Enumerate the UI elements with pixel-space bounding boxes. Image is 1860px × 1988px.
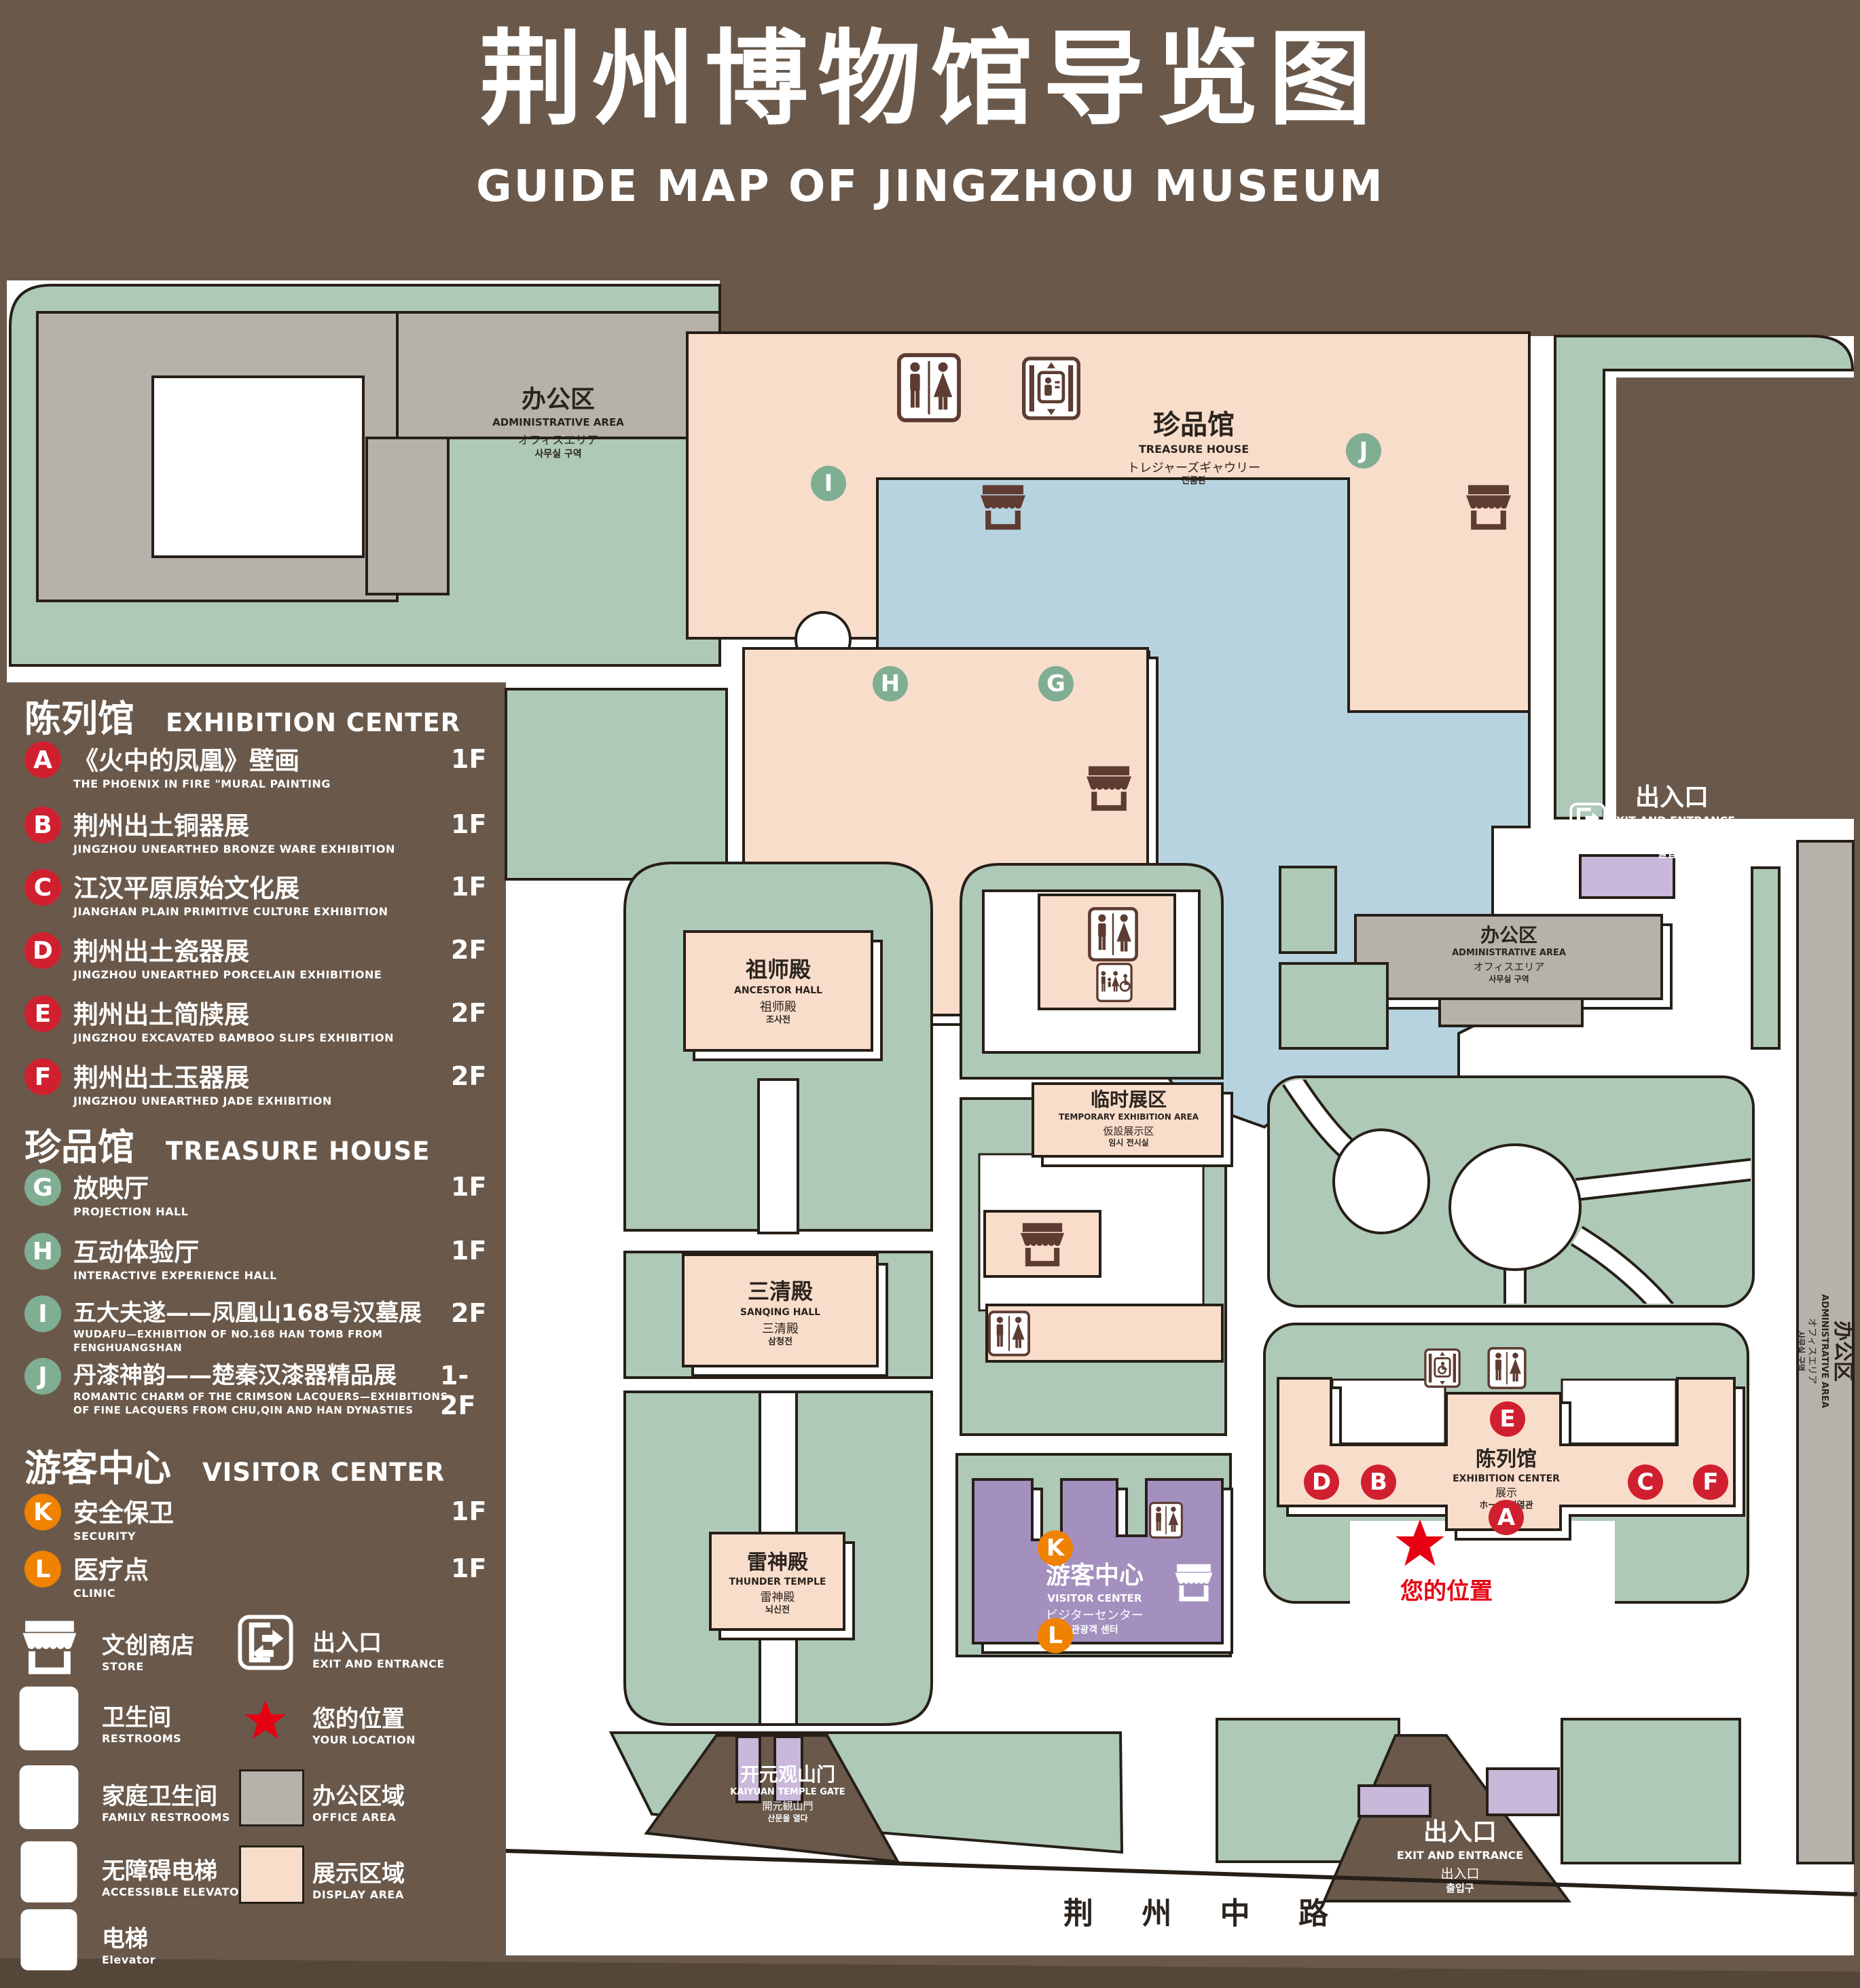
legend-facility-store: 文创商店 STORE (102, 1627, 194, 1673)
symbol-en: EXIT AND ENTRANCE (312, 1657, 445, 1670)
exit-tr-zh: 出入口 (1609, 782, 1735, 814)
symbol-en: OFFICE AREA (312, 1811, 405, 1824)
admin2-ja: オフィスエリア (1452, 961, 1566, 974)
legend-item-H: H 互动体验厅 INTERACTIVE EXPERIENCE HALL 1F (24, 1232, 500, 1283)
item-badge: H (24, 1233, 61, 1270)
road-name: 荆 州 中 路 (1063, 1894, 1347, 1933)
marker-C: C (1628, 1465, 1663, 1500)
restrooms-icon (1148, 1502, 1184, 1539)
label-treasure-house: 珍品馆 TREASURE HOUSE トレジャーズギャウリー 진품관 (1127, 407, 1260, 487)
admin2-ko: 사무실 구역 (1452, 974, 1566, 985)
exit-br-ja: 出入口 (1397, 1866, 1523, 1883)
legend-item-E: E 荆州出土简牍展 JINGZHOU EXCAVATED BAMBOO SLIP… (24, 994, 500, 1046)
admin3-ja: オフィスエリア (1806, 1294, 1818, 1408)
item-title: 江汉平原原始文化展 (73, 868, 500, 904)
item-floor: 1F (451, 1172, 486, 1202)
item-subtitle: PROJECTION HALL (73, 1204, 454, 1219)
admin2-en: ADMINISTRATIVE AREA (1452, 948, 1566, 959)
family-restrooms-icon (19, 1765, 79, 1829)
treasure-zh: 珍品馆 (1127, 407, 1260, 443)
admin-ko: 사무실 구역 (492, 448, 624, 460)
marker-D: D (1304, 1465, 1339, 1500)
family-restrooms-icon (1095, 963, 1133, 1002)
item-title: 五大夫遂——凤凰山168号汉墓展 (73, 1294, 500, 1327)
item-floor: 1F (451, 1553, 486, 1583)
exit-tr-ja: 出入口 (1609, 831, 1735, 848)
gate-ko: 산문을 열다 (730, 1814, 845, 1824)
temp-ko: 임시 전시실 (1059, 1138, 1199, 1149)
legend-facility-accessible-elevator: 无障碍电梯 ACCESSIBLE ELEVATOR (102, 1852, 248, 1898)
admin3-zh: 办公区 (1829, 1294, 1856, 1408)
item-floor: 1-2F (440, 1361, 500, 1420)
facility-en: Elevator (102, 1953, 156, 1966)
legend-item-L: L 医疗点 CLINIC 1F (24, 1549, 500, 1601)
facility-zh: 电梯 (102, 1920, 156, 1953)
legend-facility-restrooms: 卫生间 RESTROOMS (102, 1699, 181, 1745)
section-zh: 陈列馆 (24, 688, 134, 742)
label-ancestor-hall: 祖师殿 ANCESTOR HALL 祖师殿 조사전 (734, 956, 822, 1027)
thunder-zh: 雷神殿 (729, 1549, 826, 1576)
label-admin-top-left: 办公区 ADMINISTRATIVE AREA オフィスエリア 사무실 구역 (492, 384, 624, 461)
label-sanqing-hall: 三清殿 SANQING HALL 三清殿 삼청전 (740, 1278, 820, 1348)
store-icon (1464, 482, 1513, 531)
thunder-ja: 雷神殿 (729, 1590, 826, 1605)
legend-item-F: F 荆州出土玉器展 JINGZHOU UNEARTHED JADE EXHIBI… (24, 1057, 500, 1109)
item-subtitle: SECURITY (73, 1529, 454, 1544)
item-floor: 2F (451, 1061, 486, 1091)
item-floor: 1F (451, 1496, 486, 1526)
item-subtitle: JINGZHOU UNEARTHED JADE EXHIBITION (73, 1094, 454, 1109)
exit-br-zh: 出入口 (1397, 1817, 1523, 1849)
thunder-ko: 뇌신전 (729, 1605, 826, 1617)
store-icon (1173, 1560, 1214, 1604)
item-badge: G (24, 1169, 61, 1206)
store-icon (20, 1617, 79, 1676)
marker-I: I (811, 466, 846, 501)
item-subtitle: ROMANTIC CHARM OF THE CRIMSON LACQUERS—E… (73, 1390, 454, 1418)
legend-item-A: A 《火中的凤凰》壁画 THE PHOENIX IN FIRE "MURAL P… (24, 740, 500, 792)
legend-item-J: J 丹漆神韵——楚秦汉漆器精品展 ROMANTIC CHARM OF THE C… (24, 1357, 500, 1418)
legend-symbol-your-location: 您的位置 YOUR LOCATION (312, 1700, 416, 1746)
store-icon (979, 482, 1027, 531)
legend-item-D: D 荆州出土瓷器展 JINGZHOU UNEARTHED PORCELAIN E… (24, 931, 500, 982)
restrooms-icon (19, 1687, 79, 1750)
symbol-zh: 办公区域 (312, 1778, 405, 1811)
facility-zh: 无障碍电梯 (102, 1852, 248, 1885)
label-exit-bottom-right: 出入口 EXIT AND ENTRANCE 出入口 출입구 (1397, 1817, 1523, 1896)
legend-item-B: B 荆州出土铜器展 JINGZHOU UNEARTHED BRONZE WARE… (24, 805, 500, 857)
section-zh: 游客中心 (24, 1438, 171, 1492)
facility-en: ACCESSIBLE ELEVATOR (102, 1885, 248, 1898)
item-title: 《火中的凤凰》壁画 (73, 740, 500, 777)
marker-E: E (1490, 1401, 1525, 1437)
item-title: 丹漆神韵——楚秦汉漆器精品展 (73, 1357, 500, 1390)
item-title: 安全保卫 (73, 1492, 500, 1529)
restrooms-icon (1085, 907, 1141, 961)
item-badge: B (24, 807, 61, 843)
your-location-label: 您的位置 (1400, 1577, 1493, 1606)
label-thunder-temple: 雷神殿 THUNDER TEMPLE 雷神殿 뇌신전 (729, 1549, 826, 1617)
restrooms-icon (1486, 1347, 1528, 1389)
label-temporary-exhibition: 临时展区 TEMPORARY EXHIBITION AREA 仮設展示区 임시 … (1059, 1088, 1199, 1149)
marker-J: J (1346, 433, 1381, 468)
item-subtitle: INTERACTIVE EXPERIENCE HALL (73, 1268, 454, 1283)
item-floor: 1F (451, 872, 486, 902)
legend-facility-family-restrooms: 家庭卫生间 FAMILY RESTROOMS (102, 1778, 230, 1824)
symbol-en: DISPLAY AREA (312, 1888, 405, 1901)
symbol-en: YOUR LOCATION (312, 1733, 416, 1746)
legend-item-C: C 江汉平原原始文化展 JIANGHAN PLAIN PRIMITIVE CUL… (24, 868, 500, 919)
vc-zh: 游客中心 (1046, 1560, 1144, 1592)
legend-symbol-display-area: 展示区域 DISPLAY AREA (312, 1855, 405, 1901)
admin2-zh: 办公区 (1452, 923, 1566, 948)
ancestor-ja: 祖师殿 (734, 999, 822, 1015)
marker-H: H (873, 666, 908, 701)
label-admin-mid-right: 办公区 ADMINISTRATIVE AREA オフィスエリア 사무실 구역 (1452, 923, 1566, 984)
item-subtitle: CLINIC (73, 1586, 454, 1601)
your-location-star-icon (1393, 1518, 1446, 1569)
marker-F: F (1693, 1465, 1728, 1500)
facility-zh: 卫生间 (102, 1699, 181, 1732)
item-subtitle: JINGZHOU EXCAVATED BAMBOO SLIPS EXHIBITI… (73, 1031, 454, 1046)
treasure-ja: トレジャーズギャウリー (1127, 460, 1260, 476)
accessible-elevator-icon (1423, 1348, 1461, 1388)
exit-tr-ko: 출입구 (1609, 847, 1735, 861)
gate-en: KAIYUAN TEMPLE GATE (730, 1787, 845, 1799)
symbol-zh: 展示区域 (312, 1855, 405, 1888)
item-floor: 2F (451, 1298, 486, 1328)
treasure-ko: 진품관 (1127, 476, 1260, 487)
ancestor-ko: 조사전 (734, 1015, 822, 1027)
thunder-en: THUNDER TEMPLE (729, 1576, 826, 1588)
item-floor: 1F (451, 809, 486, 839)
admin-zh: 办公区 (492, 384, 624, 416)
location-star-icon (243, 1699, 288, 1742)
facility-en: FAMILY RESTROOMS (102, 1811, 230, 1824)
temp-en: TEMPORARY EXHIBITION AREA (1059, 1112, 1199, 1123)
gate-ja: 開元観山門 (730, 1800, 845, 1814)
item-floor: 2F (451, 998, 486, 1028)
item-subtitle: THE PHOENIX IN FIRE "MURAL PAINTING (73, 777, 454, 792)
section-zh: 珍品馆 (24, 1117, 134, 1171)
facility-zh: 文创商店 (102, 1627, 194, 1660)
item-floor: 2F (451, 935, 486, 965)
admin-en: ADMINISTRATIVE AREA (492, 416, 624, 430)
exit-icon (238, 1615, 293, 1670)
symbol-zh: 出入口 (312, 1624, 445, 1657)
legend-section-treasure-house: 珍品馆 TREASURE HOUSE (24, 1117, 430, 1171)
item-subtitle: JINGZHOU UNEARTHED PORCELAIN EXHIBITIONE (73, 968, 454, 982)
item-badge: D (24, 932, 61, 969)
guide-map-page: 荆州博物馆导览图 GUIDE MAP OF JINGZHOU MUSEUM 办公… (0, 0, 1860, 1988)
exit-tr-en: EXIT AND ENTRANCE (1609, 814, 1735, 828)
ec-en: EXHIBITION CENTER (1453, 1473, 1560, 1485)
section-en: TREASURE HOUSE (166, 1137, 430, 1166)
item-badge: K (24, 1494, 61, 1530)
legend-item-I: I 五大夫遂——凤凰山168号汉墓展 WUDAFU—EXHIBITION OF … (24, 1294, 500, 1355)
ec-zh: 陈列馆 (1453, 1446, 1560, 1473)
display-area-swatch (239, 1845, 304, 1904)
item-title: 医疗点 (73, 1549, 500, 1586)
item-title: 互动体验厅 (73, 1232, 500, 1268)
marker-B: B (1361, 1465, 1396, 1500)
item-title: 荆州出土玉器展 (73, 1057, 500, 1094)
legend-symbol-exit: 出入口 EXIT AND ENTRANCE (312, 1624, 445, 1670)
symbol-zh: 您的位置 (312, 1700, 416, 1733)
elevator-icon (20, 1909, 77, 1970)
legend-item-G: G 放映厅 PROJECTION HALL 1F (24, 1168, 500, 1219)
title-en: GUIDE MAP OF JINGZHOU MUSEUM (476, 159, 1385, 215)
item-subtitle: JINGZHOU UNEARTHED BRONZE WARE EXHIBITIO… (73, 842, 454, 857)
ec-l3: 展示 (1453, 1486, 1560, 1501)
item-subtitle: JIANGHAN PLAIN PRIMITIVE CULTURE EXHIBIT… (73, 904, 454, 919)
sanqing-en: SANQING HALL (740, 1306, 820, 1319)
item-floor: 1F (451, 1236, 486, 1266)
section-en: VISITOR CENTER (202, 1458, 445, 1487)
store-icon (1019, 1220, 1066, 1268)
office-area-swatch (239, 1769, 304, 1826)
exit-br-ko: 출입구 (1397, 1882, 1523, 1896)
marker-K: K (1038, 1530, 1073, 1566)
temp-zh: 临时展区 (1059, 1088, 1199, 1112)
temp-ja: 仮設展示区 (1059, 1125, 1199, 1139)
ancestor-en: ANCESTOR HALL (734, 984, 822, 997)
store-icon (1084, 763, 1133, 812)
title-zh: 荆州博物馆导览图 (476, 12, 1385, 147)
item-badge: F (24, 1059, 61, 1095)
item-badge: E (24, 995, 61, 1032)
item-title: 荆州出土铜器展 (73, 805, 500, 842)
item-floor: 1F (451, 744, 486, 774)
item-badge: I (24, 1295, 61, 1332)
section-en: EXHIBITION CENTER (166, 708, 460, 737)
restrooms-icon (897, 353, 961, 422)
page-title: 荆州博物馆导览图 GUIDE MAP OF JINGZHOU MUSEUM (476, 12, 1385, 215)
marker-A: A (1489, 1500, 1524, 1535)
sanqing-ko: 삼청전 (740, 1337, 820, 1348)
item-title: 荆州出土瓷器展 (73, 931, 500, 968)
item-badge: J (24, 1358, 61, 1395)
legend-symbol-office-area: 办公区域 OFFICE AREA (312, 1778, 405, 1824)
legend-item-K: K 安全保卫 SECURITY 1F (24, 1492, 500, 1544)
marker-G: G (1038, 666, 1074, 701)
item-badge: A (24, 741, 61, 778)
gate-zh: 开元观山门 (730, 1763, 845, 1787)
sanqing-zh: 三清殿 (740, 1278, 820, 1306)
marker-L: L (1038, 1618, 1073, 1653)
item-subtitle: WUDAFU—EXHIBITION OF NO.168 HAN TOMB FRO… (73, 1327, 454, 1355)
admin3-en: ADMINISTRATIVE AREA (1818, 1294, 1829, 1408)
admin-ja: オフィスエリア (492, 433, 624, 448)
legend-facility-elevator: 电梯 Elevator (102, 1920, 156, 1966)
restrooms-icon (988, 1306, 1030, 1361)
legend-section-visitor-center: 游客中心 VISITOR CENTER (24, 1438, 445, 1492)
elevator-icon (1022, 354, 1080, 422)
treasure-en: TREASURE HOUSE (1127, 443, 1260, 457)
sanqing-ja: 三清殿 (740, 1321, 820, 1337)
label-kaiyuan-gate: 开元观山门 KAIYUAN TEMPLE GATE 開元観山門 산문을 열다 (730, 1763, 845, 1824)
facility-zh: 家庭卫生间 (102, 1778, 230, 1811)
legend-section-exhibition-center: 陈列馆 EXHIBITION CENTER (24, 688, 460, 742)
item-title: 荆州出土简牍展 (73, 994, 500, 1031)
admin3-ko: 사무실 구역 (1795, 1294, 1806, 1408)
item-title: 放映厅 (73, 1168, 500, 1204)
vc-en: VISITOR CENTER (1046, 1592, 1144, 1606)
exit-br-en: EXIT AND ENTRANCE (1397, 1849, 1523, 1863)
facility-en: STORE (102, 1660, 194, 1673)
label-exit-top-right: 出入口 EXIT AND ENTRANCE 出入口 출입구 (1609, 782, 1735, 861)
exit-icon (1569, 803, 1606, 839)
ancestor-zh: 祖师殿 (734, 956, 822, 984)
item-badge: L (24, 1551, 61, 1587)
accessible-elevator-icon (20, 1841, 77, 1902)
facility-en: RESTROOMS (102, 1732, 181, 1745)
item-badge: C (24, 869, 61, 906)
